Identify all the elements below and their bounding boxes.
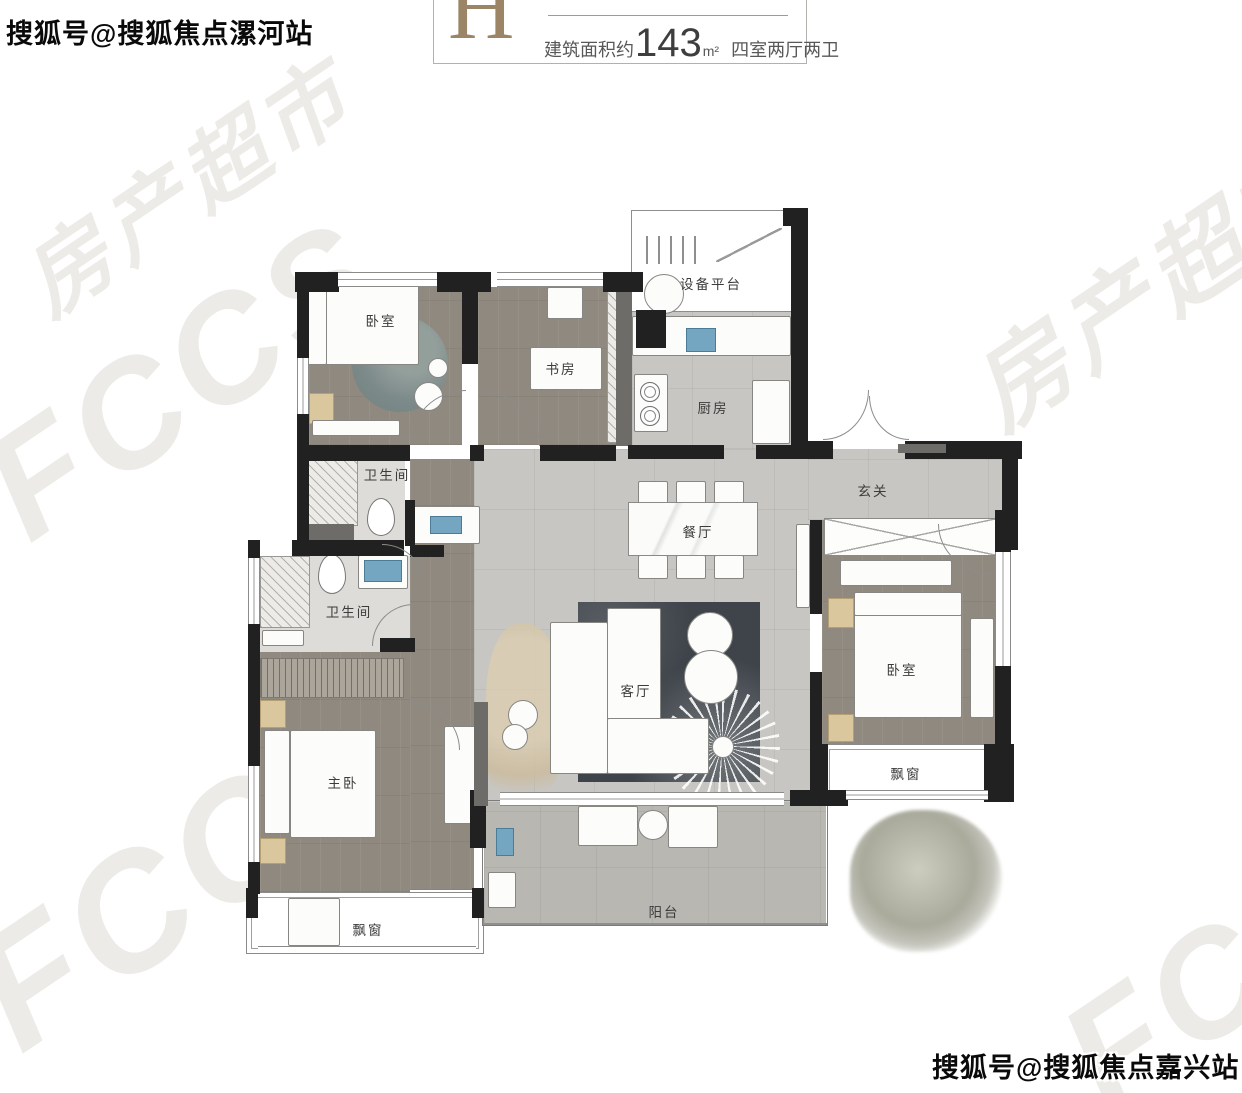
- room-label-equipment-platform: 设备平台: [678, 273, 742, 293]
- burner-1: [640, 382, 660, 402]
- chair-study: [547, 287, 583, 319]
- sofa-center: [607, 608, 661, 720]
- dining-chair: [676, 555, 706, 579]
- wall-segment: [474, 702, 488, 806]
- wall-segment: [248, 622, 260, 768]
- watermark-bottom-right: 搜狐号@搜狐焦点嘉兴站: [932, 1046, 1239, 1085]
- washer: [488, 872, 516, 908]
- wall-segment: [790, 790, 848, 806]
- room-label-bathroom-lower: 卫生间: [324, 601, 373, 621]
- wall-segment: [898, 444, 946, 453]
- sofa-left: [550, 622, 608, 774]
- unit-letter: H: [448, 0, 514, 53]
- wall-segment: [984, 744, 1014, 802]
- room-label-dining: 餐厅: [681, 521, 714, 541]
- toilet-lower: [318, 554, 346, 594]
- vent-equipment: [646, 236, 706, 264]
- window-balcony-slider: [500, 792, 784, 806]
- window: [297, 358, 309, 414]
- room-label-bedroom-right: 卧室: [885, 659, 918, 679]
- room-label-study: 书房: [544, 358, 577, 378]
- layout-spec: 四室两厅两卫: [731, 36, 839, 62]
- stool-bedroom1: [428, 358, 448, 378]
- area-line: 建筑面积约143m²四室两厅两卫: [544, 21, 839, 66]
- lounger-1: [578, 806, 638, 846]
- nightstand-master-2: [260, 838, 286, 864]
- door-arc-entry-1: [823, 390, 869, 440]
- rug-flower-center: [712, 736, 734, 758]
- door-arc-entry-2: [869, 396, 909, 440]
- dresser-bedroom2: [840, 560, 952, 586]
- wall-segment: [248, 540, 260, 560]
- room-label-foyer: 玄关: [856, 480, 889, 500]
- wall-segment: [246, 888, 258, 918]
- floorplan: 卧室 书房 设备平台 厨房 玄关 卫生间 餐厅 卫生间 客厅 卧室 主卧 飘窗 …: [0, 0, 1242, 1093]
- watermark-top-left: 搜狐号@搜狐焦点漯河站: [6, 12, 313, 51]
- room-label-master: 主卧: [326, 772, 359, 792]
- room-label-balcony: 阳台: [647, 901, 680, 921]
- wall-segment: [636, 310, 666, 348]
- wall-segment: [616, 292, 632, 446]
- room-label-bay-right: 飘窗: [889, 763, 922, 783]
- area-unit: m²: [703, 43, 719, 59]
- wall-segment: [756, 445, 792, 459]
- wall-segment: [791, 312, 808, 449]
- floorplan-page: 房产超市 FCCS FCCS 房产超市 FCCS H 户型鉴赏 建筑面积约143…: [0, 0, 1242, 1093]
- window: [995, 552, 1011, 666]
- unit-header: H 户型鉴赏 建筑面积约143m²四室两厅两卫: [433, 0, 807, 64]
- bay-cushion: [288, 898, 340, 946]
- desk-bedroom1: [312, 420, 400, 436]
- side-table-2: [684, 650, 738, 704]
- wall-segment: [405, 500, 415, 546]
- bed-pillows-bedroom1: [307, 285, 327, 365]
- kitchen-sink: [686, 328, 716, 352]
- bed-pillows-bedroom2: [854, 592, 962, 616]
- balcony-table: [638, 810, 668, 840]
- stool-living-2: [502, 724, 528, 750]
- window: [248, 558, 260, 624]
- wall-segment: [410, 545, 444, 557]
- area-prefix: 建筑面积约: [544, 36, 634, 62]
- wall-segment: [995, 510, 1011, 554]
- window: [248, 766, 260, 862]
- wall-segment: [603, 272, 643, 292]
- diag-equipment: [716, 228, 782, 262]
- shower-lower: [260, 556, 310, 628]
- shower-upper: [308, 458, 358, 526]
- sofa-chaise: [607, 718, 709, 774]
- nightstand-bedroom2-2: [828, 714, 854, 742]
- wall-segment: [540, 445, 616, 461]
- wall-segment: [810, 672, 822, 806]
- nightstand-bedroom2-1: [828, 598, 854, 628]
- wall-segment: [995, 664, 1011, 744]
- window: [338, 272, 437, 287]
- window-bay-right: [846, 790, 988, 800]
- bed-pillows-master: [264, 730, 290, 834]
- shoe-cabinet: [796, 524, 810, 608]
- bench-lower: [262, 630, 304, 646]
- wall-segment: [462, 280, 478, 364]
- burner-2: [640, 406, 660, 426]
- room-label-bedroom-top-left: 卧室: [364, 310, 397, 330]
- tree: [850, 810, 1002, 952]
- wall-segment: [472, 888, 484, 918]
- room-label-living: 客厅: [619, 680, 652, 700]
- dining-chair: [638, 555, 668, 579]
- room-label-bay-bottom: 飘窗: [351, 919, 384, 939]
- room-label-kitchen: 厨房: [696, 397, 729, 417]
- sink-upper: [430, 516, 462, 534]
- toilet-upper: [367, 498, 395, 536]
- wall-segment: [791, 441, 833, 459]
- room-label-bathroom-upper: 卫生间: [362, 464, 411, 484]
- fridge: [752, 380, 790, 444]
- window: [497, 272, 603, 287]
- wall-segment: [297, 413, 309, 545]
- area-value: 143: [635, 21, 702, 66]
- wall-segment: [628, 445, 724, 459]
- balcony-sink: [496, 828, 514, 856]
- wardrobe-master: [260, 658, 404, 698]
- dining-chair: [714, 555, 744, 579]
- wall-segment: [810, 522, 822, 614]
- nightstand-master-1: [260, 700, 286, 728]
- foyer-floor: [808, 449, 1002, 520]
- lounger-2: [668, 806, 718, 848]
- wall-segment: [470, 445, 484, 461]
- bench-bedroom2: [970, 618, 994, 718]
- wall-segment: [297, 280, 309, 360]
- wall-segment: [297, 445, 410, 461]
- header-divider: [548, 15, 788, 16]
- wall-segment: [783, 208, 808, 226]
- window-bay-bottom: [258, 946, 476, 954]
